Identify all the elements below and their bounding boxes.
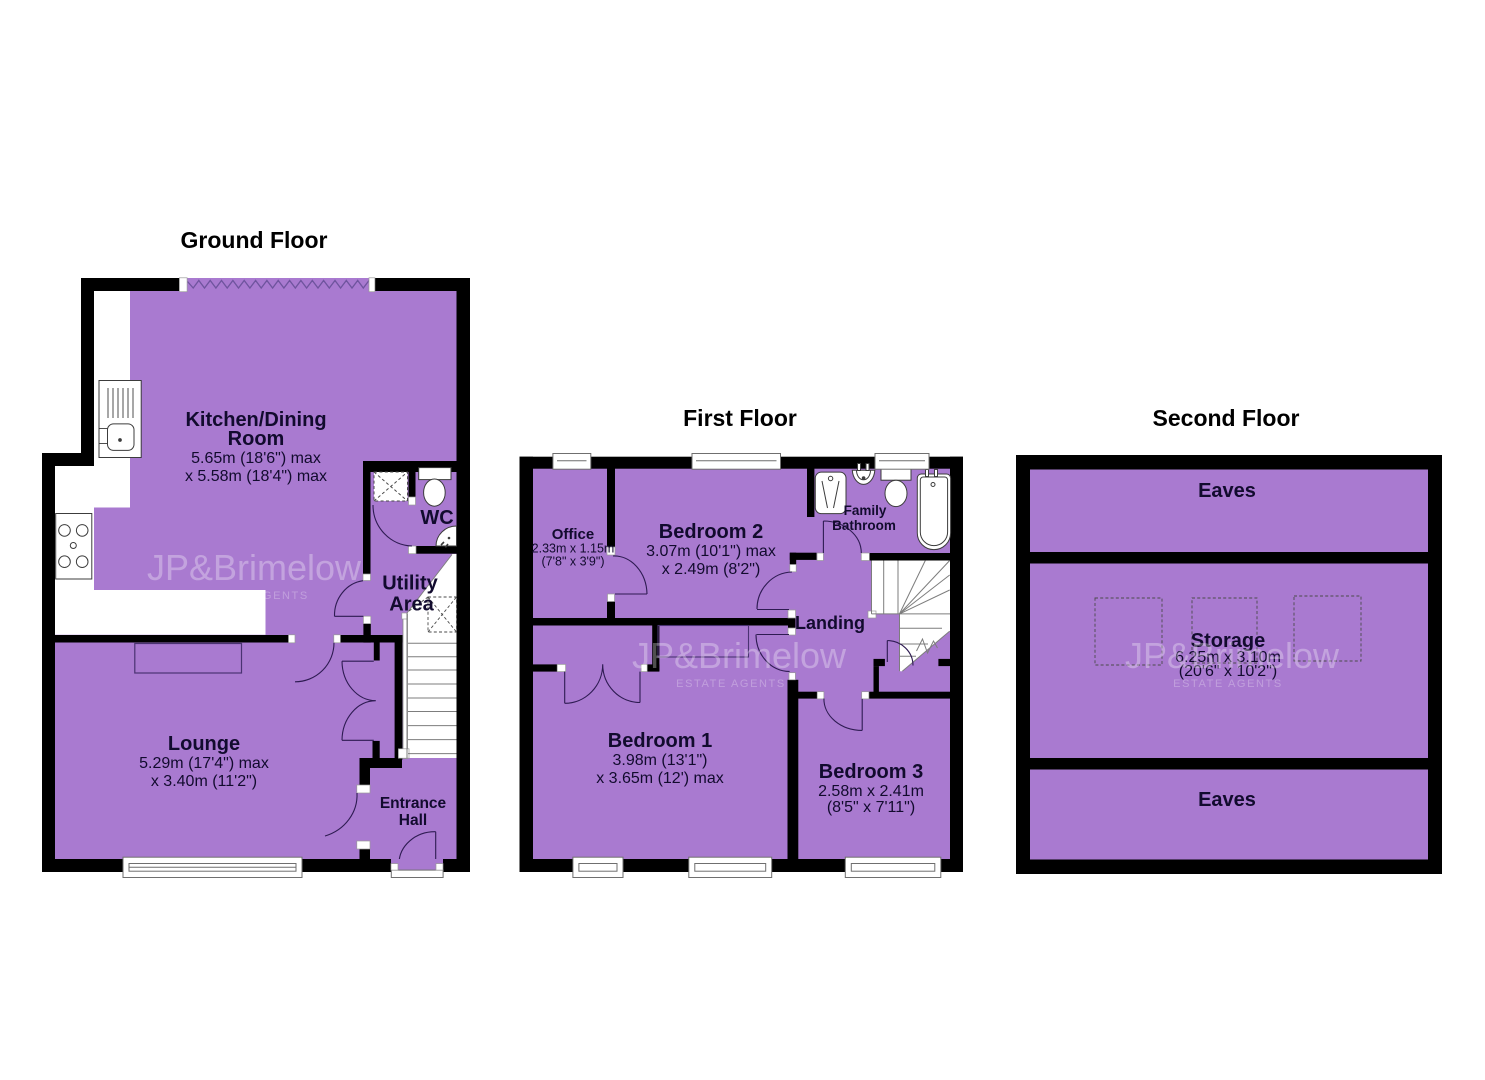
svg-text:3.07m (10'1") max: 3.07m (10'1") max bbox=[646, 543, 776, 560]
svg-text:Office: Office bbox=[552, 526, 595, 543]
svg-text:Hall: Hall bbox=[399, 812, 427, 829]
svg-text:5.65m (18'6") max: 5.65m (18'6") max bbox=[191, 450, 321, 467]
svg-text:ESTATE AGENTS: ESTATE AGENTS bbox=[676, 678, 786, 690]
svg-text:Bathroom: Bathroom bbox=[832, 518, 896, 533]
svg-text:Entrance: Entrance bbox=[380, 795, 447, 812]
svg-text:Landing: Landing bbox=[795, 613, 865, 633]
svg-text:Eaves: Eaves bbox=[1198, 480, 1256, 502]
svg-text:ESTATE AGENTS: ESTATE AGENTS bbox=[1173, 678, 1283, 690]
svg-text:5.29m (17'4") max: 5.29m (17'4") max bbox=[139, 755, 269, 772]
svg-text:Second Floor: Second Floor bbox=[1153, 405, 1300, 431]
svg-text:2.58m x 2.41m: 2.58m x 2.41m bbox=[818, 783, 924, 800]
svg-text:WC: WC bbox=[420, 507, 453, 529]
svg-text:Utility: Utility bbox=[382, 573, 438, 595]
svg-text:JP&Brimelow: JP&Brimelow bbox=[632, 635, 847, 676]
svg-text:JP&Brimelow: JP&Brimelow bbox=[1125, 635, 1340, 676]
svg-text:3.98m (13'1"): 3.98m (13'1") bbox=[613, 752, 708, 769]
svg-text:2.33m x 1.15m: 2.33m x 1.15m bbox=[532, 542, 615, 556]
svg-text:(8'5" x 7'11"): (8'5" x 7'11") bbox=[827, 799, 915, 816]
svg-text:Bedroom 2: Bedroom 2 bbox=[659, 521, 763, 543]
svg-text:First Floor: First Floor bbox=[683, 405, 797, 431]
svg-text:Bedroom 1: Bedroom 1 bbox=[608, 730, 712, 752]
svg-text:x 5.58m (18'4") max: x 5.58m (18'4") max bbox=[185, 468, 327, 485]
svg-text:Family: Family bbox=[844, 503, 887, 518]
svg-text:x 3.65m (12') max: x 3.65m (12') max bbox=[596, 770, 724, 787]
svg-text:Area: Area bbox=[389, 594, 434, 616]
svg-text:JP&Brimelow: JP&Brimelow bbox=[147, 547, 362, 588]
svg-text:Eaves: Eaves bbox=[1198, 789, 1256, 811]
svg-text:x 3.40m (11'2"): x 3.40m (11'2") bbox=[151, 773, 257, 790]
svg-text:ESTATE AGENTS: ESTATE AGENTS bbox=[199, 590, 309, 602]
svg-text:(7'8" x 3'9"): (7'8" x 3'9") bbox=[542, 555, 605, 569]
svg-text:x 2.49m (8'2"): x 2.49m (8'2") bbox=[662, 561, 761, 578]
svg-text:Bedroom 3: Bedroom 3 bbox=[819, 761, 923, 783]
svg-text:Ground Floor: Ground Floor bbox=[181, 227, 328, 253]
svg-text:Lounge: Lounge bbox=[168, 733, 240, 755]
svg-text:Room: Room bbox=[228, 428, 285, 450]
